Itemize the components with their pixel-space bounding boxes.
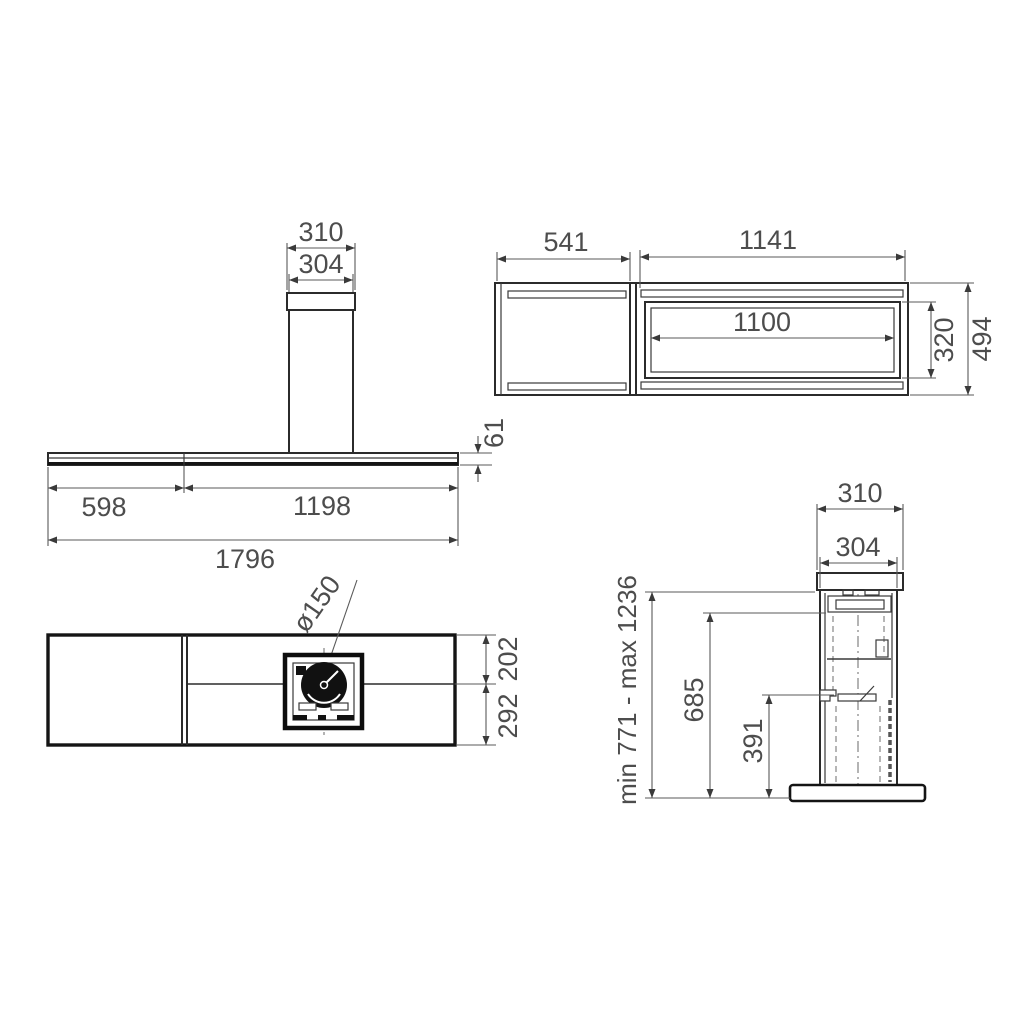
front-chimney	[287, 293, 355, 454]
dim-top-cutout-depth: 320	[902, 302, 959, 378]
front-hood-body	[48, 453, 458, 465]
dim-front-body-height: 61	[460, 418, 509, 482]
technical-drawing-page: 310 304 598 1198 1796 61	[0, 0, 1024, 1024]
side-view: 310 304 min 771 - max 1236 685 391	[612, 478, 925, 805]
dim-front-chimney-body-width: 304	[289, 249, 353, 292]
dim-bottom-depths: 202 292	[455, 635, 523, 745]
bottom-outline	[48, 635, 455, 745]
dim-label: 494	[967, 316, 997, 361]
dim-label: 391	[738, 718, 768, 763]
dim-top-left-width: 541	[497, 227, 630, 281]
dim-label: 1100	[733, 307, 791, 337]
internal-bracket	[876, 640, 888, 657]
side-hood-body	[790, 785, 925, 801]
dim-side-heights: min 771 - max 1236 685 391	[612, 575, 834, 805]
dim-label: 598	[81, 492, 126, 522]
dim-label: 310	[837, 478, 882, 508]
dim-label: 685	[679, 677, 709, 722]
bottom-view: ø150 202 292	[48, 570, 523, 745]
dim-label: 202	[493, 636, 523, 681]
dim-label-height-range: min 771 - max 1236	[612, 575, 642, 805]
side-chimney	[817, 573, 903, 792]
mounting-bracket	[299, 703, 316, 710]
dim-label: 1198	[293, 491, 351, 521]
top-view: 1100 541 1141 320 494	[495, 225, 997, 395]
dim-label: 304	[835, 532, 880, 562]
dim-label: 304	[298, 249, 343, 279]
dim-top-right-width: 1141	[640, 225, 905, 288]
motor-unit	[285, 648, 362, 735]
dim-label: 1796	[215, 544, 275, 574]
dim-front-widths: 598 1198 1796	[48, 466, 458, 574]
dim-label: 541	[543, 227, 588, 257]
dim-label: 1141	[739, 225, 797, 255]
dim-label: 61	[479, 418, 509, 448]
drawing-canvas: 310 304 598 1198 1796 61	[0, 0, 1024, 1024]
front-view: 310 304 598 1198 1796 61	[48, 217, 509, 574]
dim-label: 292	[493, 693, 523, 738]
dim-label-outlet-diameter: ø150	[287, 570, 347, 638]
mounting-bracket	[331, 703, 348, 710]
dim-label: 310	[298, 217, 343, 247]
dim-label: 320	[929, 317, 959, 362]
